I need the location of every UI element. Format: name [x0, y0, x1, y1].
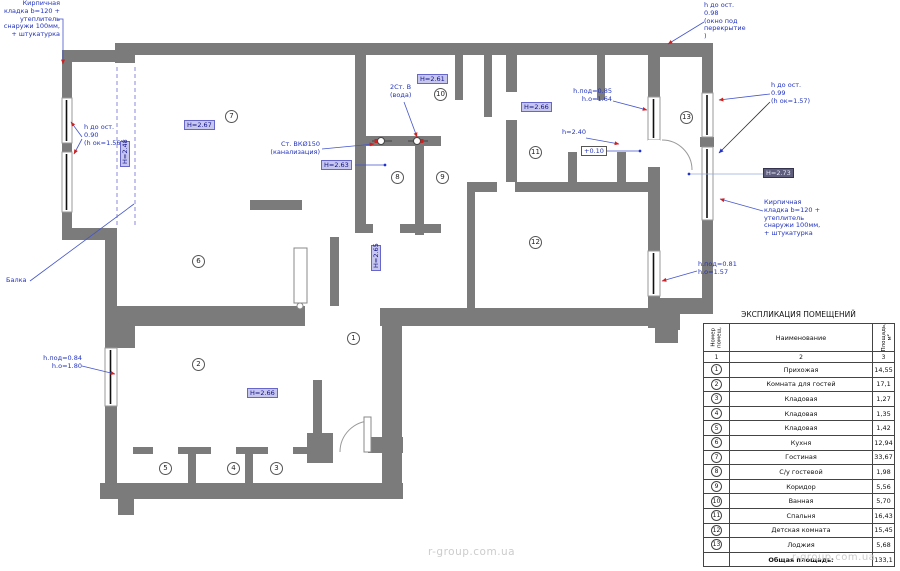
watermark: r-group.com.ua — [428, 546, 515, 558]
annotation-lintel-height: h=2.40 — [562, 129, 586, 137]
annotation-window-right-low: h.под=0.81 h.о=1.57 — [698, 261, 737, 277]
watermark: r-group.com.ua — [792, 552, 875, 563]
header-room-area: Площадь, м² — [873, 324, 895, 352]
table-row: 13Лоджия5,68 — [704, 538, 895, 553]
height-label-h267: H=2.67 — [184, 120, 215, 130]
table-row: 11Спальня16,43 — [704, 508, 895, 523]
table-row: 12Детская комната15,45 — [704, 523, 895, 538]
height-label-h273: H=2.73 — [763, 168, 794, 178]
height-label-h266: H=2.66 — [521, 102, 552, 112]
table-row: 9Коридор5,56 — [704, 479, 895, 494]
room-circle-13: 13 — [680, 111, 693, 124]
header-room-name: Наименование — [730, 324, 873, 352]
table-header-row: Номер помещ. Наименование Площадь, м² — [704, 324, 895, 352]
annotation-window-right: h до ост. 0.99 (h ок=1.57) — [771, 82, 810, 105]
room-circle-12: 12 — [529, 236, 542, 249]
annotation-window-mid: h.под=0.85 h.о=1.64 — [552, 88, 612, 104]
annotation-beam: Балка — [6, 277, 27, 285]
walls — [62, 43, 714, 515]
room-circle-8: 8 — [391, 171, 404, 184]
table-row: 5Кладовая1,42 — [704, 421, 895, 436]
room-circle-9: 9 — [436, 171, 449, 184]
table-row: 1Прихожая14,55 — [704, 363, 895, 378]
elevation-mark: +0.10 — [581, 146, 607, 156]
height-label-h261: H=2.61 — [417, 74, 448, 84]
room-schedule-table: Номер помещ. Наименование Площадь, м² 1 … — [703, 323, 895, 567]
room-circle-6: 6 — [192, 255, 205, 268]
room-circle-7: 7 — [225, 110, 238, 123]
annotation-window-top-right: h до ост. 0.98 (окно под перекрытие ) — [704, 2, 746, 41]
annotation-sewer-riser: Ст. ВКØ150 (канализация) — [250, 141, 320, 157]
table-row: 4Кладовая1,35 — [704, 406, 895, 421]
annotation-window-left: h до ост. 0.90 (h ок=1.56) — [84, 124, 123, 147]
annotation-brick-left: Кирпичная кладка b=120 + утеплитель снар… — [0, 0, 60, 39]
height-label-h266b: H=2.66 — [247, 388, 278, 398]
annotation-brick-right: Кирпичная кладка b=120 + утеплитель снар… — [764, 199, 820, 238]
table-row: 7Гостиная33,67 — [704, 450, 895, 465]
height-label-h263: H=2.63 — [321, 160, 352, 170]
table-row: 6Кухня12,94 — [704, 435, 895, 450]
room-circle-5: 5 — [159, 462, 172, 475]
table-row: 2Комната для гостей17,1 — [704, 377, 895, 392]
room-circle-11: 11 — [529, 146, 542, 159]
column-number-row: 1 2 3 — [704, 352, 895, 363]
height-label-h248: H=2.48 — [120, 141, 130, 167]
table-title: ЭКСПЛИКАЦИЯ ПОМЕЩЕНИЙ — [703, 310, 894, 319]
room-circle-1: 1 — [347, 332, 360, 345]
floor-plan-page: { "plan": { "annotations": { "brick_left… — [0, 0, 900, 571]
annotation-water-riser: 2Ст. В (вода) — [390, 84, 411, 100]
room-circle-3: 3 — [270, 462, 283, 475]
annotation-window-left-low: h.под=0.84 h.о=1.80 — [28, 355, 82, 371]
table-row: 10Ванная5,70 — [704, 494, 895, 509]
table-row: 3Кладовая1,27 — [704, 392, 895, 407]
room-circle-10: 10 — [434, 88, 447, 101]
header-room-number: Номер помещ. — [704, 324, 730, 352]
total-area: 133,1 — [873, 552, 895, 567]
table-row: 8С/у гостевой1,98 — [704, 465, 895, 480]
room-circle-2: 2 — [192, 358, 205, 371]
height-label-h265: H=2.65 — [371, 245, 381, 271]
room-circle-4: 4 — [227, 462, 240, 475]
